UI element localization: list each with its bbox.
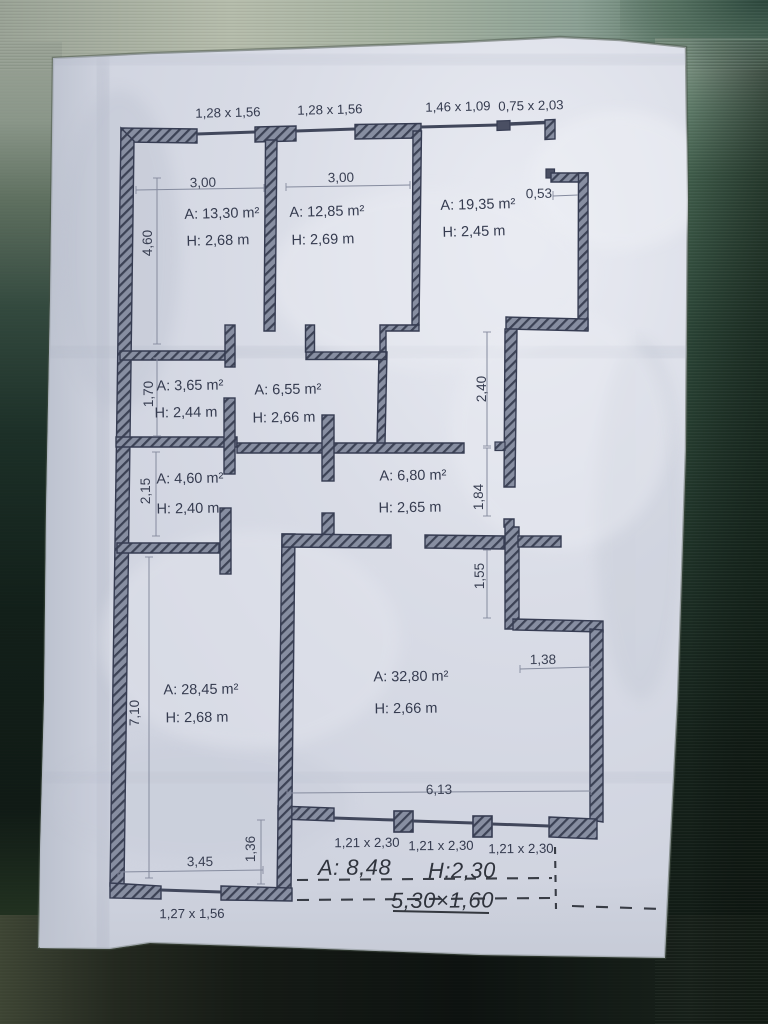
svg-text:1,21 x 2,30: 1,21 x 2,30 [488, 841, 553, 856]
svg-text:A: 4,60 m²: A: 4,60 m² [156, 470, 223, 487]
svg-text:A: 3,65 m²: A: 3,65 m² [156, 377, 223, 394]
svg-text:H: 2,65 m: H: 2,65 m [378, 500, 441, 517]
svg-text:1,70: 1,70 [141, 381, 156, 407]
svg-text:A: 32,80 m²: A: 32,80 m² [373, 669, 448, 686]
svg-text:A: 28,45 m²: A: 28,45 m² [163, 682, 238, 699]
svg-text:3,00: 3,00 [328, 170, 355, 186]
svg-text:1,84: 1,84 [471, 483, 486, 510]
svg-text:1,55: 1,55 [472, 563, 487, 589]
svg-text:0,53: 0,53 [526, 186, 553, 202]
svg-text:H: 2,66 m: H: 2,66 m [252, 410, 315, 427]
svg-text:1,21 x 2,30: 1,21 x 2,30 [334, 835, 399, 850]
svg-text:7,10: 7,10 [127, 700, 142, 726]
svg-text:A: 6,80 m²: A: 6,80 m² [379, 467, 446, 484]
svg-text:H: 2,44 m: H: 2,44 m [154, 405, 217, 422]
svg-text:A: 13,30 m²: A: 13,30 m² [184, 205, 259, 223]
svg-text:1,38: 1,38 [530, 652, 556, 667]
svg-text:H: 2,45 m: H: 2,45 m [442, 223, 505, 240]
svg-text:1,21 x 2,30: 1,21 x 2,30 [408, 838, 473, 853]
svg-text:4,60: 4,60 [140, 230, 155, 256]
svg-text:H: 2,66 m: H: 2,66 m [374, 701, 437, 718]
svg-text:H:2,30: H:2,30 [428, 858, 496, 883]
svg-text:A: 8,48: A: 8,48 [316, 854, 392, 880]
svg-text:2,40: 2,40 [474, 376, 489, 402]
svg-text:H: 2,68 m: H: 2,68 m [186, 232, 249, 249]
svg-text:H: 2,69 m: H: 2,69 m [291, 231, 354, 248]
svg-text:5,30×1,60: 5,30×1,60 [391, 887, 494, 913]
svg-text:1,36: 1,36 [243, 836, 258, 862]
svg-text:H: 2,40 m: H: 2,40 m [156, 501, 219, 518]
svg-text:6,13: 6,13 [426, 782, 452, 797]
svg-text:1,28 x 1,56: 1,28 x 1,56 [297, 101, 363, 117]
svg-text:A: 12,85 m²: A: 12,85 m² [289, 203, 364, 221]
svg-text:A: 19,35 m²: A: 19,35 m² [440, 196, 515, 214]
svg-text:1,27 x 1,56: 1,27 x 1,56 [159, 906, 224, 921]
svg-text:H: 2,68 m: H: 2,68 m [165, 710, 228, 727]
svg-text:1,28 x 1,56: 1,28 x 1,56 [195, 104, 261, 120]
svg-text:0,75 x 2,03: 0,75 x 2,03 [498, 97, 564, 113]
svg-text:A: 6,55 m²: A: 6,55 m² [254, 381, 321, 398]
svg-text:2,15: 2,15 [138, 478, 153, 504]
svg-text:1,46 x 1,09: 1,46 x 1,09 [425, 98, 491, 114]
svg-text:3,45: 3,45 [187, 854, 213, 869]
svg-text:3,00: 3,00 [190, 175, 217, 191]
